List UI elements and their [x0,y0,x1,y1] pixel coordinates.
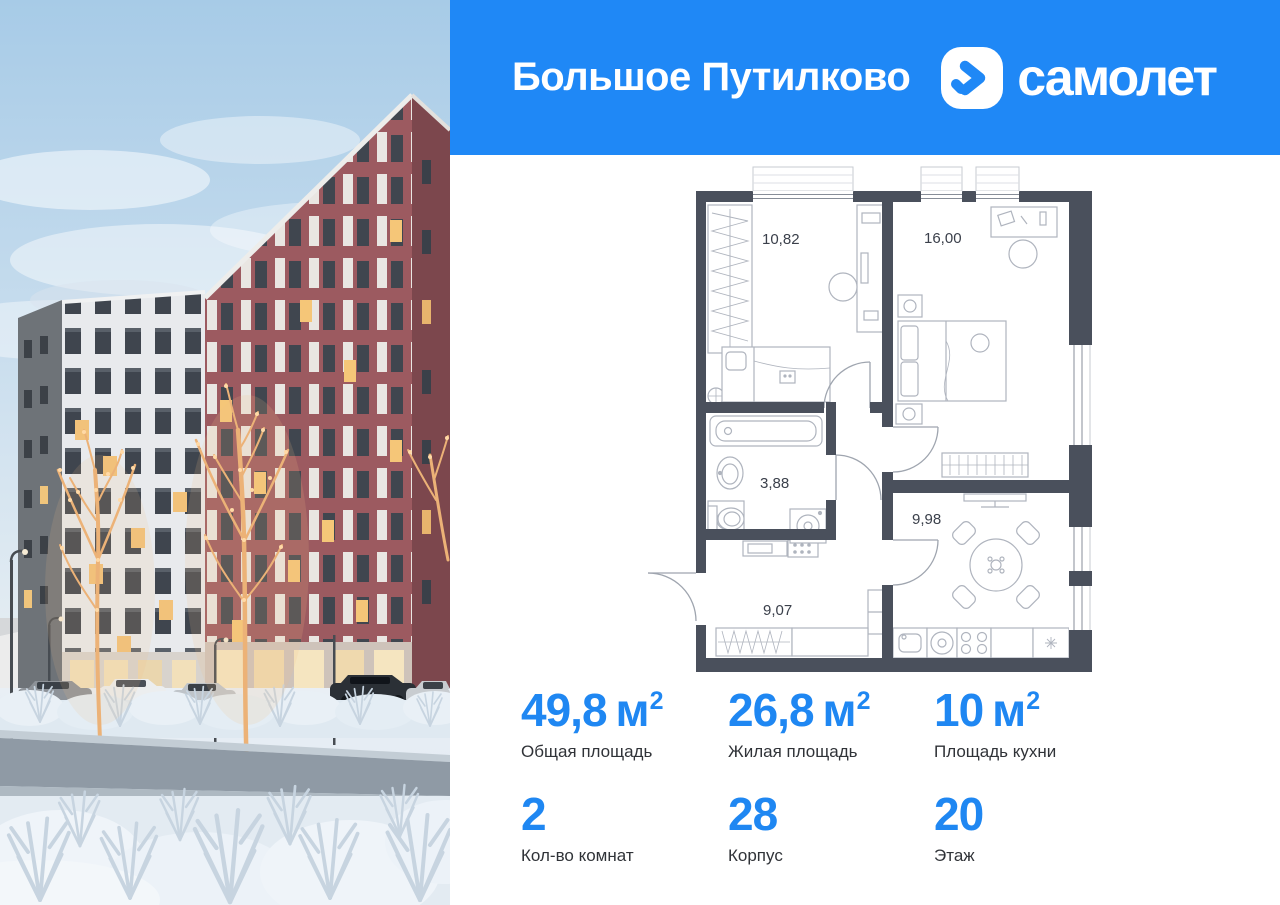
stat-label: Корпус [728,846,938,866]
stat-kitchen-area: 10м2 Площадь кухни [934,676,1144,762]
stat-label: Кол-во комнат [521,846,731,866]
listing-card: Большое Путилково самолет [0,0,1280,905]
stat-label: Жилая площадь [728,742,938,762]
stat-rooms-count: 2 Кол-во комнат [521,780,731,866]
floor-plan: 10,82 16,00 3,88 9,98 9,07 [616,161,1116,701]
info-panel: Большое Путилково самолет [450,0,1280,905]
stat-value: 10м2 [934,676,1144,735]
samolet-logo-text: самолет [1017,52,1216,104]
project-name: Большое Путилково [512,55,910,100]
stat-value: 49,8м2 [521,676,731,735]
stat-value: 28 [728,780,938,839]
samolet-logo-icon [941,47,1003,109]
project-photo [0,0,450,905]
room-area-label: 16,00 [924,230,962,247]
foreground-shrubs [0,785,450,905]
stat-label: Этаж [934,846,1144,866]
stat-value: 26,8м2 [728,676,938,735]
header: Большое Путилково самолет [450,0,1280,155]
stat-building-number: 28 Корпус [728,780,938,866]
stat-value: 2 [521,780,731,839]
room-area-label: 10,82 [762,231,800,248]
room-area-label: 9,07 [763,602,792,619]
room-area-label: 3,88 [760,475,789,492]
room-area-label: 9,98 [912,511,941,528]
stat-label: Площадь кухни [934,742,1144,762]
stat-living-area: 26,8м2 Жилая площадь [728,676,938,762]
stat-label: Общая площадь [521,742,731,762]
stat-floor-number: 20 Этаж [934,780,1144,866]
stat-total-area: 49,8м2 Общая площадь [521,676,731,762]
stat-value: 20 [934,780,1144,839]
samolet-logo: самолет [941,47,1216,109]
winter-scene [0,0,450,905]
